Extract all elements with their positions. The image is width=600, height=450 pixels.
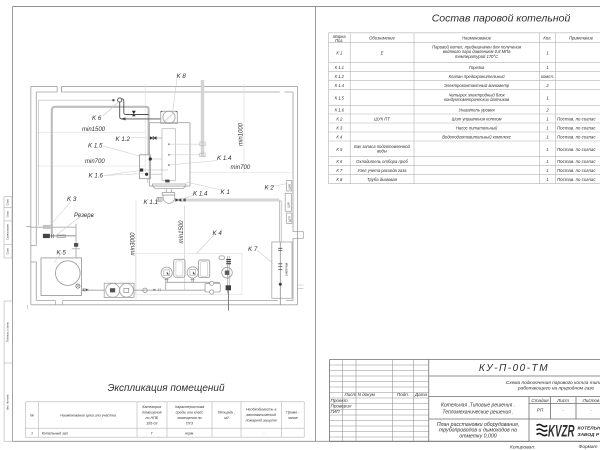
svg-text:K 1.4: K 1.4	[193, 191, 208, 198]
svg-text:Тепломеханические решения .: Тепломеханические решения .	[442, 410, 513, 416]
svg-text:Необходимость в: Необходимость в	[246, 408, 276, 412]
svg-text:Электроконтактный манометр: Электроконтактный манометр	[444, 83, 510, 88]
svg-text:К 7: К 7	[336, 168, 343, 173]
svg-text:ШУК ПТ: ШУК ПТ	[374, 117, 390, 122]
svg-text:Формат: Формат	[579, 444, 598, 450]
svg-text:К 5: К 5	[336, 147, 343, 152]
svg-text:Копировал:: Копировал:	[510, 445, 536, 450]
svg-text:среды или класс: среды или класс	[176, 411, 204, 415]
svg-text:1: 1	[546, 159, 548, 164]
svg-text:К 8: К 8	[336, 177, 343, 182]
svg-text:Водоподготовительный комплекс: Водоподготовительный комплекс	[442, 135, 512, 140]
svg-text:K 1.1: K 1.1	[144, 199, 158, 206]
svg-text:компл.: компл.	[541, 74, 554, 79]
svg-text:min1500: min1500	[82, 127, 106, 133]
svg-text:ГИП: ГИП	[331, 409, 341, 414]
svg-text:КОТЕЛЬН: КОТЕЛЬН	[578, 426, 600, 432]
svg-text:1: 1	[546, 126, 548, 131]
svg-text:min1000: min1000	[239, 122, 245, 146]
svg-text:Насос питательный: Насос питательный	[456, 126, 498, 131]
svg-text:Примечание: Примечание	[569, 36, 594, 41]
svg-text:температурой 170°С: температурой 170°С	[455, 54, 499, 59]
svg-text:пожарной защите: пожарной защите	[246, 419, 277, 423]
svg-text:Постав. по соглас: Постав. по соглас	[557, 126, 596, 131]
svg-text:1: 1	[546, 51, 548, 56]
svg-text:Площадь ,: Площадь ,	[218, 411, 236, 415]
svg-text:К 1.5: К 1.5	[335, 96, 345, 101]
svg-text:Постав. по соглас: Постав. по соглас	[557, 159, 596, 164]
svg-text:К 1.2: К 1.2	[335, 74, 345, 79]
svg-text:К 2: К 2	[336, 117, 343, 122]
svg-text:помещения: помещения	[142, 411, 161, 415]
svg-text:Поз.: Поз.	[335, 38, 343, 43]
svg-text:K 7: K 7	[248, 246, 258, 253]
svg-text:K 5: K 5	[57, 250, 67, 257]
svg-text:K 8: K 8	[177, 73, 187, 80]
svg-text:Постав. по соглас: Постав. по соглас	[557, 177, 596, 182]
svg-text:1: 1	[546, 117, 548, 122]
svg-text:1: 1	[546, 177, 548, 182]
svg-text:автоматической: автоматической	[246, 413, 276, 417]
svg-text:min3000: min3000	[131, 232, 137, 256]
svg-text:Проверил: Проверил	[331, 404, 352, 409]
svg-text:ЗАВОД Р: ЗАВОД Р	[578, 432, 600, 438]
svg-text:min1500: min1500	[179, 220, 185, 244]
svg-text:K 6: K 6	[92, 115, 102, 122]
svg-text:К 6: К 6	[336, 159, 343, 164]
svg-text:воды: воды	[377, 149, 387, 154]
svg-text:помещения по: помещения по	[177, 416, 201, 420]
svg-text:Наименование: Наименование	[462, 36, 492, 41]
svg-text:Труба дымовая: Труба дымовая	[367, 177, 398, 182]
svg-text:Постав. по соглас: Постав. по соглас	[557, 147, 596, 152]
svg-text:1: 1	[546, 96, 548, 101]
svg-text:РП: РП	[537, 408, 544, 413]
svg-text:Согл.: Согл.	[6, 198, 10, 205]
svg-text:Шит управления котлом: Шит управления котлом	[452, 117, 502, 122]
svg-text:K 1.5: K 1.5	[88, 143, 103, 150]
svg-text:1: 1	[31, 432, 33, 436]
svg-text:K 1: K 1	[221, 189, 230, 196]
svg-text:Котельный зал: Котельный зал	[42, 432, 68, 436]
svg-text:KVZR: KVZR	[548, 422, 575, 441]
svg-text:Проект.: Проект.	[331, 398, 349, 403]
svg-text:ЩУВ: ЩУВ	[288, 184, 291, 190]
svg-text:отметку 0,000: отметку 0,000	[459, 433, 496, 439]
svg-text:Лист: Лист	[556, 398, 569, 403]
svg-text:ПУЗ: ПУЗ	[186, 422, 194, 426]
svg-text:K 1.6: K 1.6	[89, 173, 104, 180]
svg-text:К 1: К 1	[336, 51, 342, 56]
svg-text:Экспликация помещений: Экспликация помещений	[107, 383, 225, 394]
svg-text:Постав. по соглас: Постав. по соглас	[557, 135, 596, 140]
svg-text:1: 1	[546, 147, 548, 152]
svg-text:Котельная .Типовые решения .: Котельная .Типовые решения .	[441, 403, 515, 409]
svg-text:Е: Е	[381, 51, 384, 56]
svg-text:Наименование цеха или участка: Наименование цеха или участка	[60, 414, 116, 418]
svg-text:Постав. по соглас: Постав. по соглас	[557, 117, 596, 122]
svg-text:1: 1	[546, 65, 548, 70]
svg-text:Кол.: Кол.	[543, 36, 551, 41]
svg-text:работающего на природном газе: работающего на природном газе	[517, 385, 595, 391]
svg-text:Согл.: Согл.	[6, 210, 10, 217]
svg-text:K 2: K 2	[265, 185, 275, 192]
svg-text:K 3: K 3	[67, 196, 77, 203]
svg-text:Клапан предохранительный: Клапан предохранительный	[449, 74, 506, 79]
svg-text:ЩУП: ЩУП	[288, 216, 291, 222]
svg-text:Резерв: Резерв	[74, 213, 94, 219]
svg-text:K 1.4: K 1.4	[217, 155, 232, 162]
svg-text:Характеристика: Характеристика	[174, 405, 205, 409]
svg-text:1: 1	[546, 135, 548, 140]
svg-text:К 1.6: К 1.6	[335, 108, 345, 113]
svg-text:Стадия: Стадия	[531, 398, 549, 403]
svg-text:Согл.: Согл.	[6, 247, 10, 254]
svg-text:Лист N докум: Лист N докум	[344, 392, 376, 397]
svg-text:м2: м2	[224, 416, 228, 420]
svg-text:счетчик: счетчик	[285, 262, 289, 276]
svg-text:К 4: К 4	[336, 135, 343, 140]
svg-text:Горелка: Горелка	[469, 65, 485, 70]
svg-text:К 1.4: К 1.4	[335, 83, 345, 88]
svg-text:Охладитель отбора проб: Охладитель отбора проб	[356, 159, 408, 164]
svg-text:К 3: К 3	[336, 126, 343, 131]
svg-text:105-03: 105-03	[146, 422, 157, 426]
svg-text:Листов: Листов	[582, 398, 600, 403]
svg-text:кондуктометрических датчиков: кондуктометрических датчиков	[444, 97, 510, 102]
svg-text:Подпись и дата: Подпись и дата	[6, 322, 10, 342]
svg-text:K 4: K 4	[213, 230, 223, 237]
svg-text:min700: min700	[85, 159, 105, 165]
svg-text:№: №	[30, 414, 34, 418]
svg-text:по НПБ: по НПБ	[146, 416, 159, 420]
svg-text:1: 1	[546, 168, 548, 173]
svg-text:Подп.: Подп.	[397, 392, 409, 397]
svg-text:Обозначение: Обозначение	[369, 36, 395, 41]
svg-text:K 1.2: K 1.2	[116, 136, 131, 143]
svg-text:Категория: Категория	[142, 405, 161, 409]
svg-text:Указатель уровня: Указатель уровня	[459, 108, 496, 113]
svg-text:Схема подключения парового кот: Схема подключения парового котла типа Е	[506, 380, 600, 386]
svg-text:чание: чание	[288, 416, 298, 420]
svg-text:норм.: норм.	[185, 432, 194, 436]
svg-text:К 1.1: К 1.1	[335, 65, 344, 70]
svg-text:Приме -: Приме -	[286, 411, 300, 415]
svg-text:КУ-П-00-ТМ: КУ-П-00-ТМ	[479, 363, 549, 374]
svg-text:Состав паровой котельной: Состав паровой котельной	[432, 13, 571, 25]
svg-text:min700: min700	[231, 165, 251, 171]
svg-text:Узел учета расхода газа: Узел учета расхода газа	[357, 168, 407, 173]
svg-text:ЩУК: ЩУК	[287, 202, 290, 208]
svg-text:Согласовано: Согласовано	[6, 224, 10, 240]
svg-text:Постав. по соглас: Постав. по соглас	[557, 168, 596, 173]
svg-text:Дата: Дата	[414, 392, 428, 397]
svg-text:Инв. № подл.: Инв. № подл.	[6, 394, 10, 410]
